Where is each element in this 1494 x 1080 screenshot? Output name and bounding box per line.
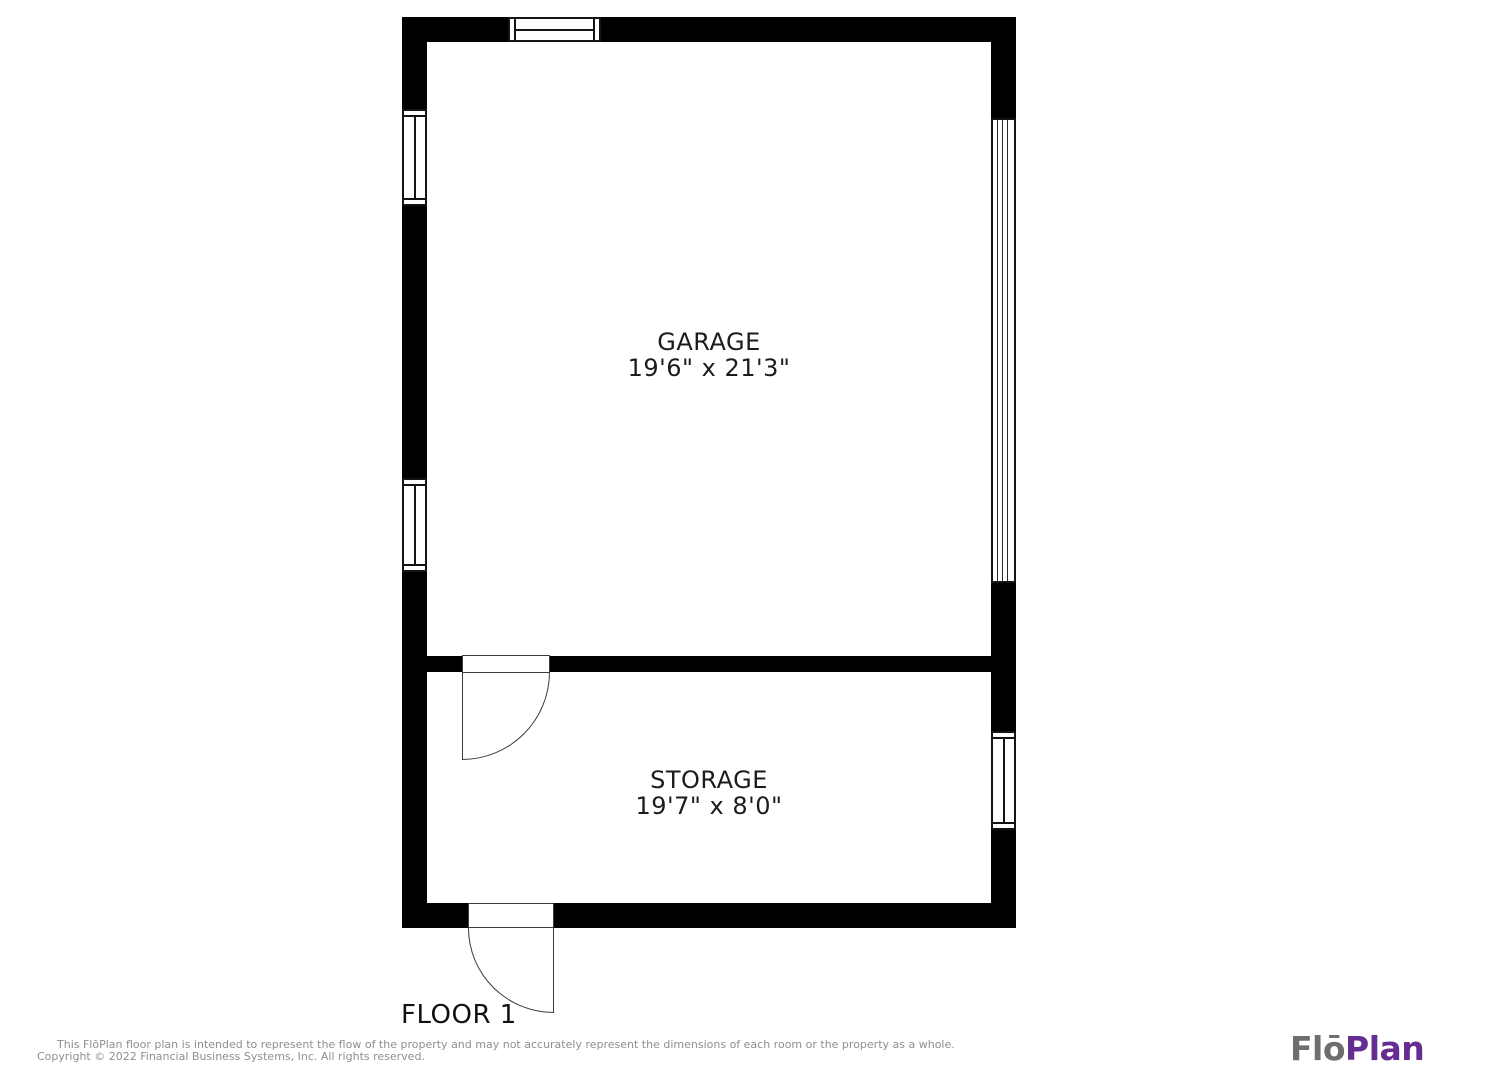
window-left-upper [402, 109, 427, 206]
wall-left-lower [402, 572, 427, 928]
window-left-lower [402, 478, 427, 572]
garage-door [991, 118, 1016, 583]
window-mullion [414, 486, 416, 564]
window-sash-line [993, 822, 1014, 824]
wall-top-left [402, 17, 508, 42]
window-top-wall [508, 17, 601, 42]
room-dimensions-garage: 19'6" x 21'3" [427, 355, 991, 381]
wall-divider-right [550, 656, 991, 672]
logo-plan-text: Plan [1345, 1029, 1424, 1068]
logo-flo-text: Flō [1290, 1029, 1345, 1068]
window-sash-line [404, 198, 425, 200]
garage-door-track-line [1007, 120, 1008, 581]
wall-top-right [601, 17, 1016, 42]
floor-plan: GARAGE 19'6" x 21'3" STORAGE 19'7" x 8'0… [0, 0, 1494, 1080]
exterior-door-opening [468, 903, 554, 928]
window-mullion [516, 29, 593, 31]
room-label-garage: GARAGE [427, 329, 991, 355]
room-label-storage: STORAGE [427, 767, 991, 793]
garage-door-track-line [1002, 120, 1003, 581]
interior-door-swing-arc [462, 672, 550, 760]
garage-door-track-line [997, 120, 998, 581]
window-sash-line [593, 19, 595, 40]
room-storage: STORAGE 19'7" x 8'0" [427, 767, 991, 819]
window-mullion [1003, 739, 1005, 822]
floplan-logo: FlōPlan [1290, 1029, 1424, 1068]
wall-bottom-left [402, 903, 468, 928]
window-storage-right [991, 731, 1016, 830]
wall-bottom-right [554, 903, 1016, 928]
wall-right-middle [991, 583, 1016, 731]
room-garage: GARAGE 19'6" x 21'3" [427, 329, 991, 381]
room-dimensions-storage: 19'7" x 8'0" [427, 793, 991, 819]
disclaimer-line-2: Copyright © 2022 Financial Business Syst… [37, 1051, 425, 1063]
wall-left-middle [402, 206, 427, 478]
window-mullion [414, 117, 416, 198]
window-sash-line [404, 564, 425, 566]
wall-divider-left [427, 656, 462, 672]
interior-door-opening [462, 655, 550, 673]
floor-label: FLOOR 1 [401, 1000, 517, 1030]
